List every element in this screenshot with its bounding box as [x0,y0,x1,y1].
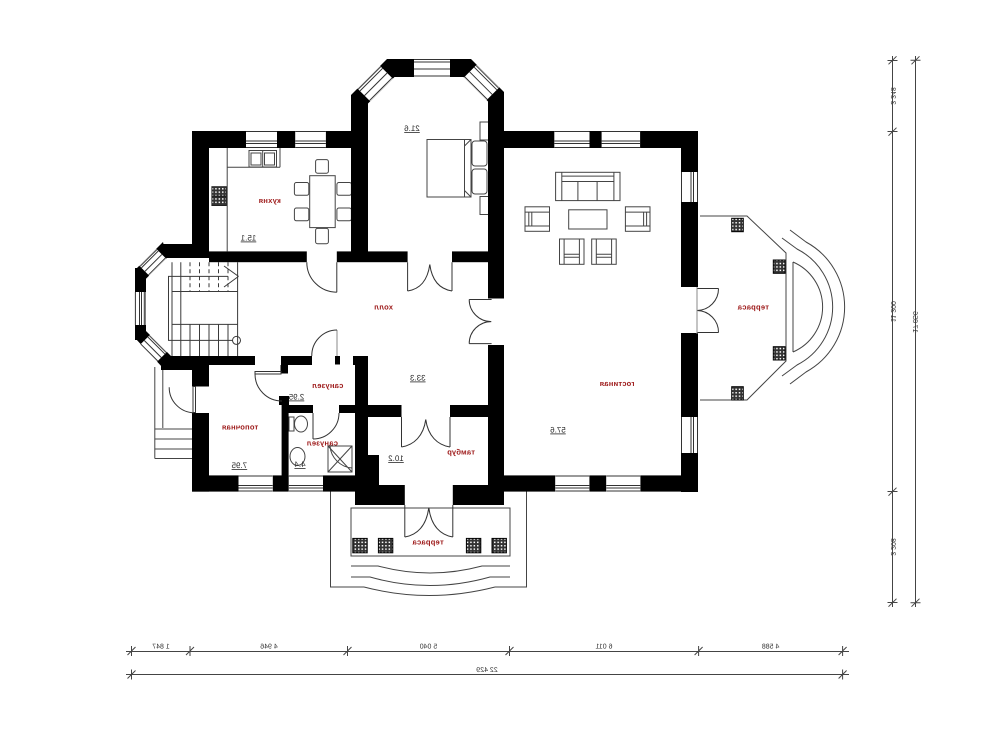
svg-text:57.6: 57.6 [550,426,566,435]
svg-text:11 300: 11 300 [889,301,896,322]
svg-text:4.4: 4.4 [294,460,306,469]
svg-text:терраса: терраса [737,303,769,312]
svg-text:терраса: терраса [412,538,444,547]
svg-text:холл: холл [374,303,393,312]
svg-text:10.2: 10.2 [388,454,404,463]
svg-text:кухня: кухня [259,196,281,205]
svg-text:17 856: 17 856 [911,311,918,333]
svg-text:33.3: 33.3 [409,374,425,383]
svg-text:4 946: 4 946 [260,644,278,651]
svg-text:5 040: 5 040 [420,644,438,651]
svg-text:санузел: санузел [307,439,338,448]
svg-text:гостиная: гостиная [599,379,634,388]
svg-text:22 429: 22 429 [476,667,498,674]
svg-text:тамбур: тамбур [447,448,475,457]
svg-text:1 847: 1 847 [152,644,170,651]
svg-text:3 348: 3 348 [889,87,896,105]
svg-text:2.95: 2.95 [288,393,304,402]
svg-text:4 588: 4 588 [762,644,780,651]
svg-text:топочная: топочная [222,423,259,432]
svg-text:7.95: 7.95 [231,461,247,470]
svg-text:санузел: санузел [312,381,343,390]
svg-text:6 011: 6 011 [595,644,612,651]
svg-text:3 208: 3 208 [889,538,896,556]
svg-text:15.1: 15.1 [240,234,256,243]
svg-text:21.6: 21.6 [404,124,420,133]
